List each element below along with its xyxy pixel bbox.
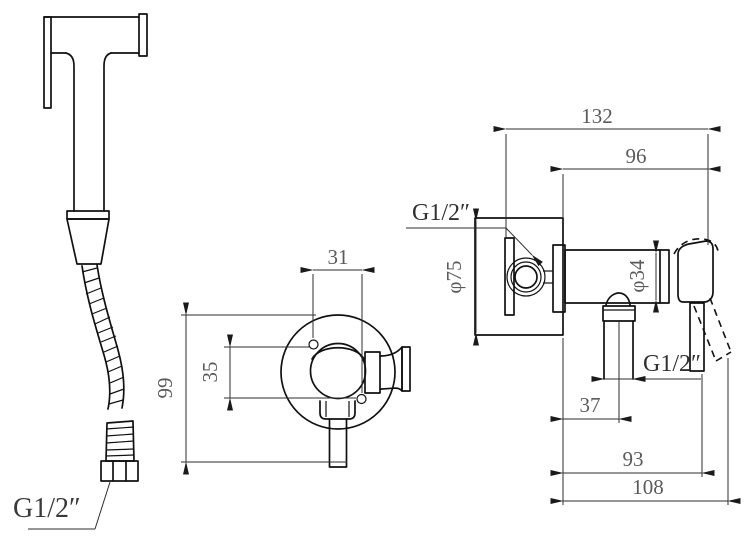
screw-hole-top: [309, 340, 318, 349]
screw-hole-bottom: [357, 395, 366, 404]
dim-93: 93: [563, 374, 702, 477]
dim-phi75: φ75: [442, 221, 476, 333]
dim-phi34: φ34: [625, 253, 656, 300]
in-wall-housing: [475, 218, 565, 335]
sprayer-view: G1/2″: [13, 14, 147, 529]
dim-132-text: 132: [581, 104, 613, 128]
outlet-thread-label: G1/2″: [643, 351, 701, 377]
hose-nut-connector: [101, 421, 138, 481]
wall-plate-circle: [281, 315, 395, 429]
valve-side-view: 132 96 G1/2″ φ75 φ34 G1/2″: [406, 104, 731, 505]
inlet-thread-callout: G1/2″: [406, 200, 532, 255]
sprayer-head: [44, 14, 147, 211]
hose-thread-callout: G1/2″: [13, 482, 110, 529]
dim-35: 35: [198, 347, 356, 398]
drawing-canvas: G1/2″ 31: [0, 0, 747, 549]
dim-108-text: 108: [632, 475, 664, 499]
dim-35-text: 35: [198, 362, 222, 383]
dim-37-text: 37: [580, 393, 601, 417]
dim-93-text: 93: [623, 447, 644, 471]
dim-phi34-text: φ34: [625, 259, 649, 293]
hose-thread-label: G1/2″: [13, 493, 81, 524]
valve-front-view: 31 35 99: [153, 245, 410, 467]
dim-31: 31: [313, 245, 362, 393]
dim-37: 37: [563, 338, 619, 505]
outlet-fitting-front: [320, 401, 355, 467]
outlet-pipe-front: [330, 419, 347, 467]
inlet-coil-inner: [515, 266, 537, 288]
sprayer-handle-collar: [67, 211, 109, 264]
sprayer-holder-hook: [365, 347, 410, 393]
dim-31-text: 31: [328, 245, 349, 269]
inlet-thread-label: G1/2″: [412, 200, 470, 226]
sprayer-hose: [82, 265, 124, 409]
dim-108: 108: [563, 358, 728, 505]
dim-132: 132: [506, 104, 708, 245]
dim-99-text: 99: [153, 378, 177, 399]
dim-96-text: 96: [626, 144, 647, 168]
dim-96: 96: [563, 144, 708, 218]
handle-dashed-top: [674, 239, 718, 254]
valve-body-side: [565, 250, 669, 303]
technical-drawing: G1/2″ 31: [0, 0, 747, 549]
inlet-coil-outer: [507, 258, 545, 296]
dim-phi75-text: φ75: [442, 260, 466, 293]
outlet-side: [603, 293, 635, 423]
